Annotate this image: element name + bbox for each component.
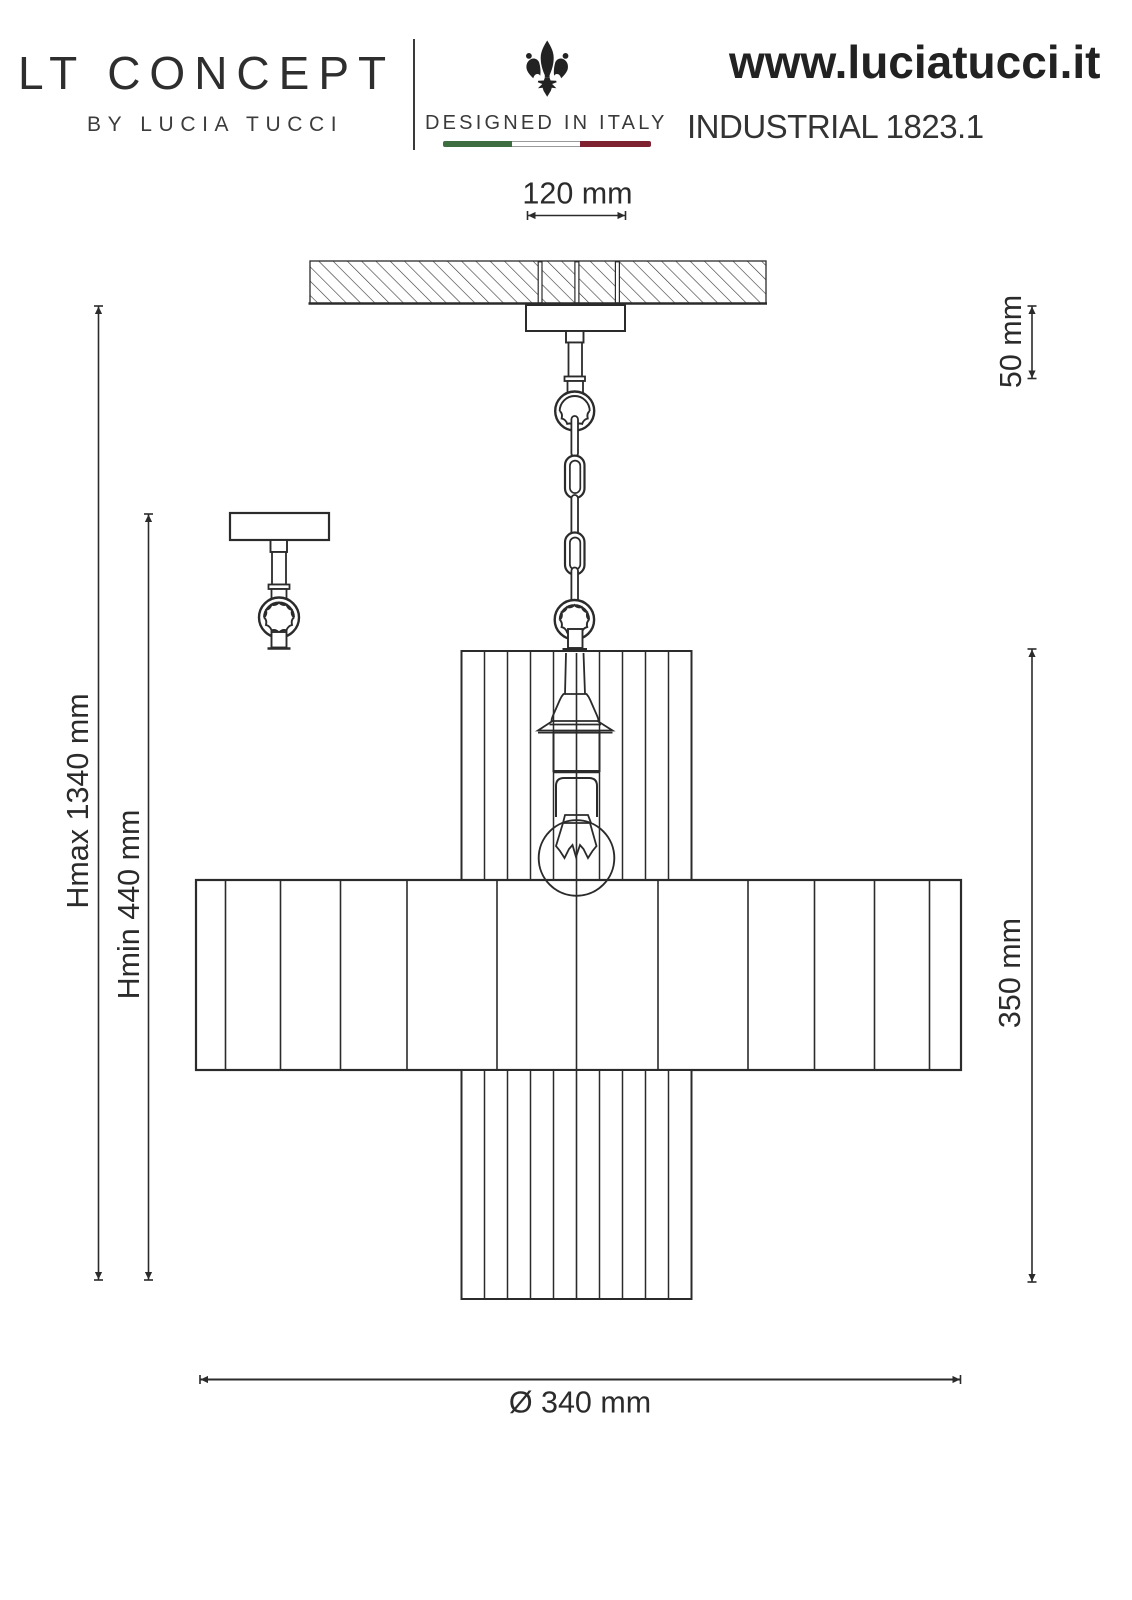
- svg-text:50 mm: 50 mm: [994, 295, 1028, 388]
- svg-text:Hmin 440 mm: Hmin 440 mm: [112, 810, 146, 1000]
- svg-text:350 mm: 350 mm: [993, 918, 1027, 1028]
- svg-text:Ø 340 mm: Ø 340 mm: [509, 1386, 651, 1420]
- svg-text:120 mm: 120 mm: [522, 177, 632, 211]
- svg-text:Hmax 1340 mm: Hmax 1340 mm: [61, 693, 95, 908]
